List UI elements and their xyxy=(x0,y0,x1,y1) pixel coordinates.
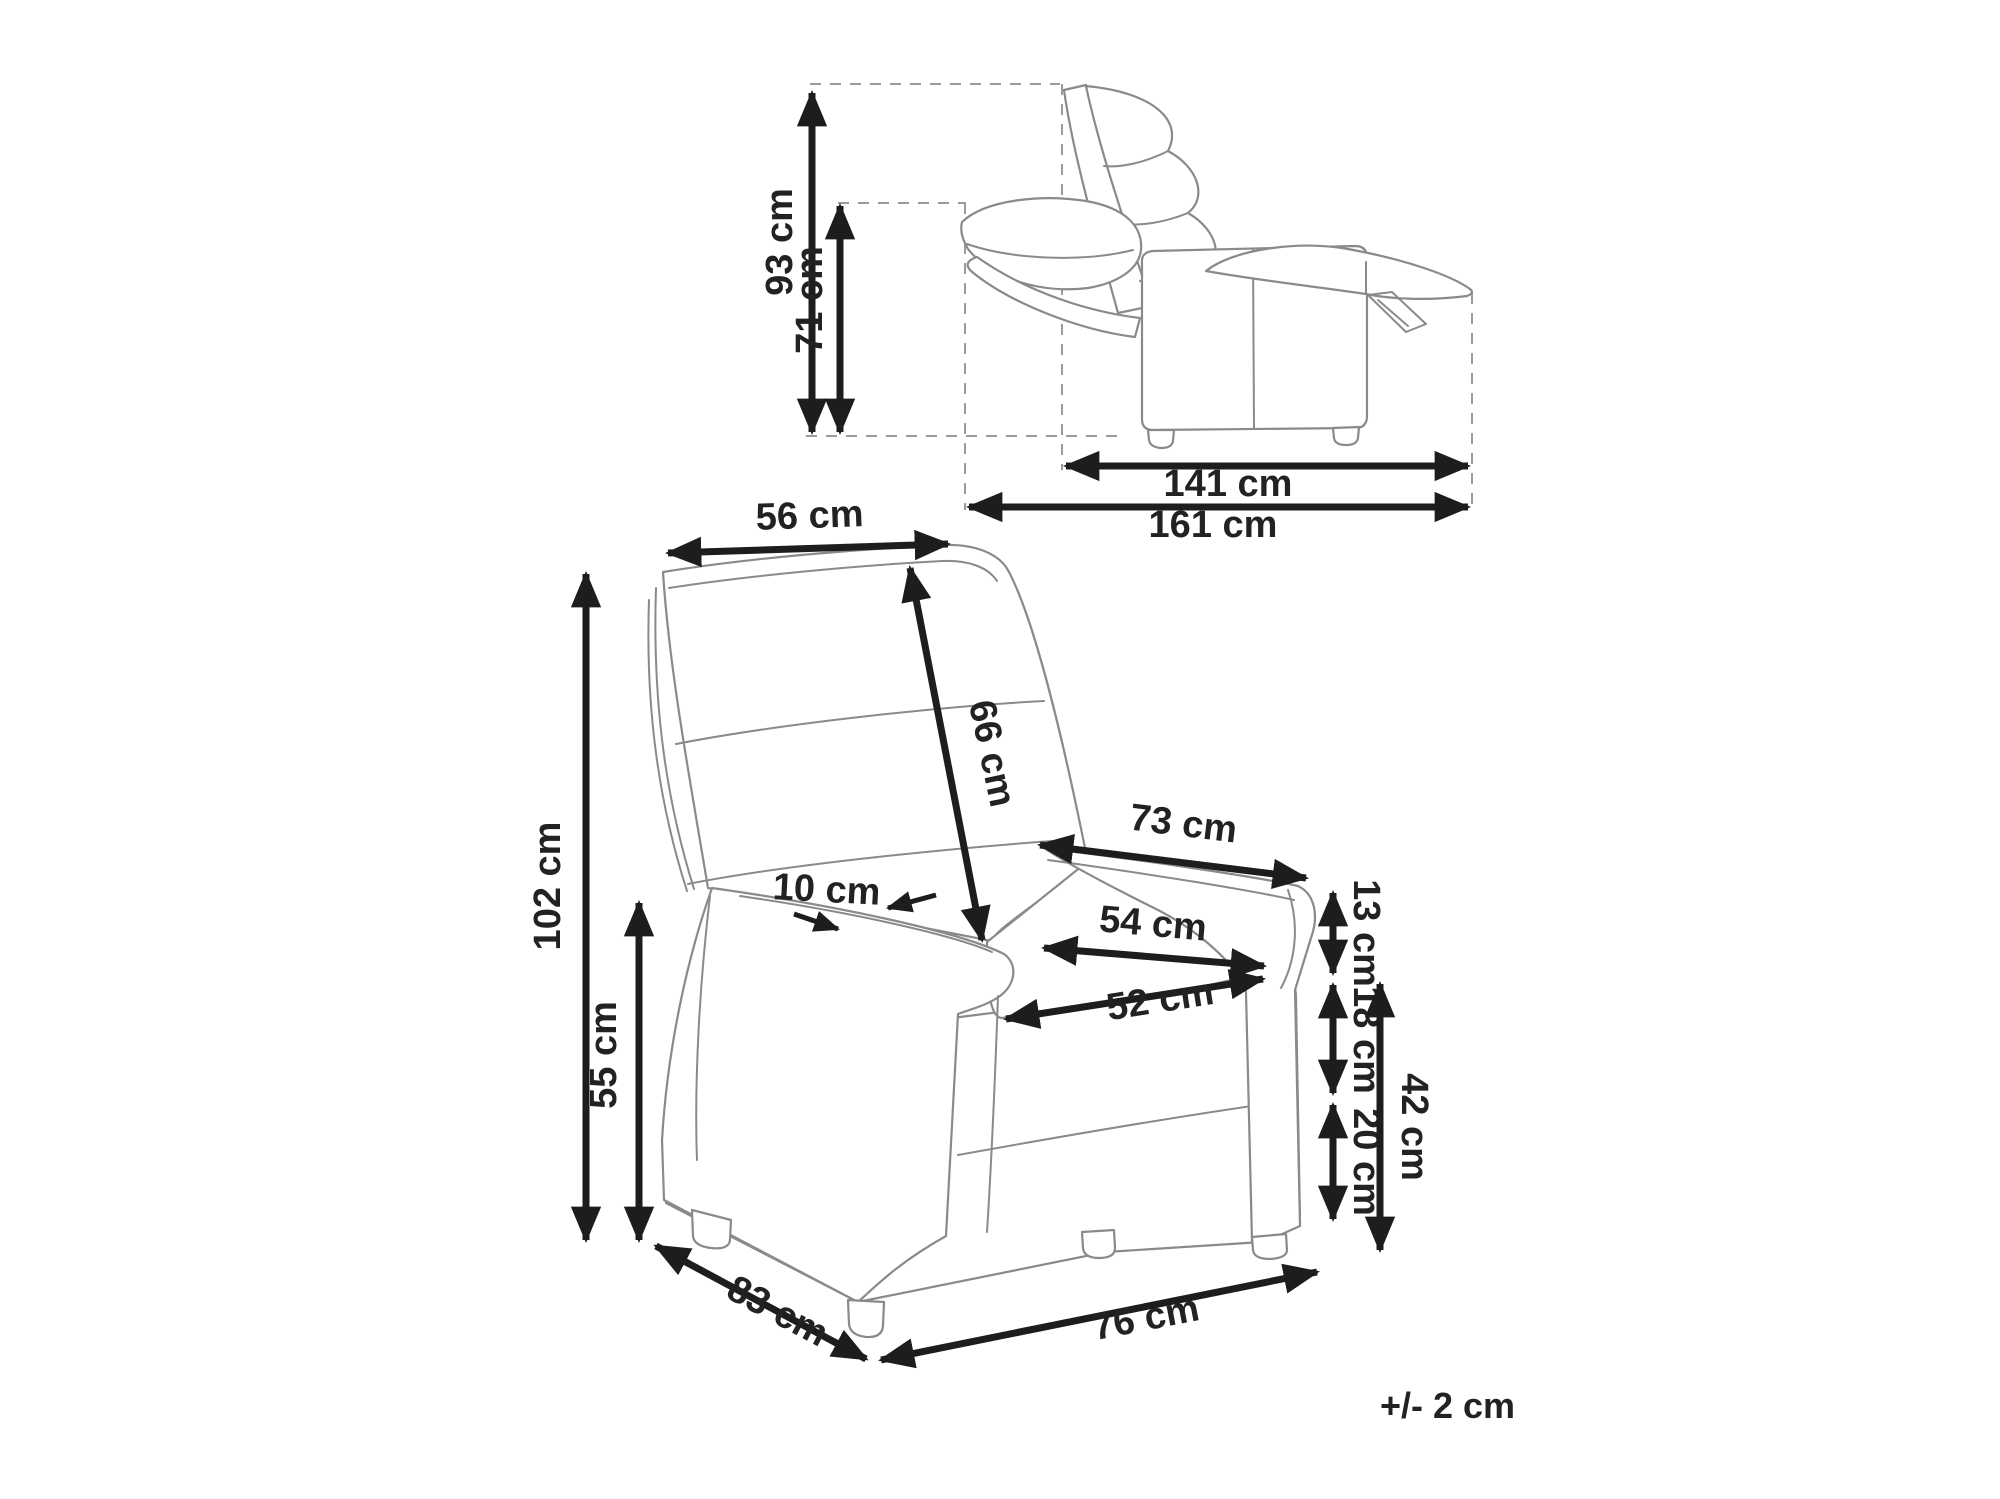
dim-73-label: 73 cm xyxy=(1127,797,1239,852)
dim-71-label: 71 cm xyxy=(789,246,831,354)
dim-102-label: 102 cm xyxy=(527,822,569,951)
foot-right-outer xyxy=(1252,1234,1287,1259)
foot-front-center xyxy=(848,1300,884,1337)
side-foot-right xyxy=(1333,427,1359,445)
dim-10-label: 10 cm xyxy=(772,866,882,914)
diagram-canvas: 93 cm 71 cm 141 cm 161 cm xyxy=(0,0,2000,1499)
dim-56-label: 56 cm xyxy=(755,493,864,539)
side-foot-left xyxy=(1148,430,1174,448)
dim-42-label: 42 cm xyxy=(1393,1073,1435,1181)
dimension-diagram: 93 cm 71 cm 141 cm 161 cm xyxy=(0,0,2000,1499)
tolerance-note: +/- 2 cm xyxy=(1380,1385,1515,1426)
dim-161-label: 161 cm xyxy=(1149,504,1278,546)
side-view-reclined: 93 cm 71 cm 141 cm 161 cm xyxy=(759,84,1472,546)
front-view-upright: 56 cm 66 cm 102 cm 55 cm 10 cm 73 cm 54 … xyxy=(527,493,1435,1360)
dim-13-label: 13 cm xyxy=(1345,879,1387,987)
dim-141-label: 141 cm xyxy=(1164,463,1293,505)
dim-55-label: 55 cm xyxy=(583,1001,625,1109)
foot-mid-right xyxy=(1082,1230,1115,1258)
dim-76-label: 76 cm xyxy=(1089,1287,1203,1349)
